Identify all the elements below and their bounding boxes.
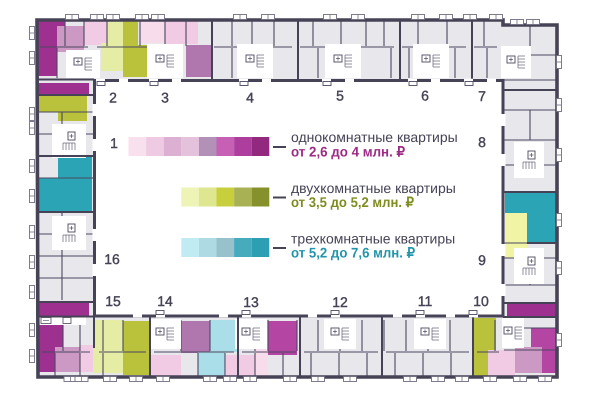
svg-text:7: 7 — [478, 88, 486, 104]
svg-text:9: 9 — [478, 252, 486, 268]
svg-text:10: 10 — [473, 293, 489, 309]
svg-text:6: 6 — [421, 87, 429, 103]
svg-text:2: 2 — [109, 89, 117, 105]
svg-text:11: 11 — [418, 293, 433, 309]
svg-text:14: 14 — [157, 293, 173, 309]
svg-text:8: 8 — [478, 134, 486, 150]
svg-text:от 2,6 до 4 млн. ₽: от 2,6 до 4 млн. ₽ — [291, 144, 405, 160]
svg-text:13: 13 — [243, 294, 259, 310]
svg-text:5: 5 — [336, 87, 344, 103]
svg-text:3: 3 — [161, 89, 169, 105]
svg-text:от 5,2 до 7,6 млн. ₽: от 5,2 до 7,6 млн. ₽ — [291, 245, 415, 261]
svg-text:1: 1 — [110, 135, 118, 151]
svg-text:4: 4 — [246, 89, 254, 105]
svg-text:16: 16 — [104, 251, 120, 267]
svg-text:от 3,5 до 5,2 млн. ₽: от 3,5 до 5,2 млн. ₽ — [291, 194, 414, 210]
svg-text:12: 12 — [332, 294, 348, 310]
svg-text:15: 15 — [105, 293, 121, 309]
